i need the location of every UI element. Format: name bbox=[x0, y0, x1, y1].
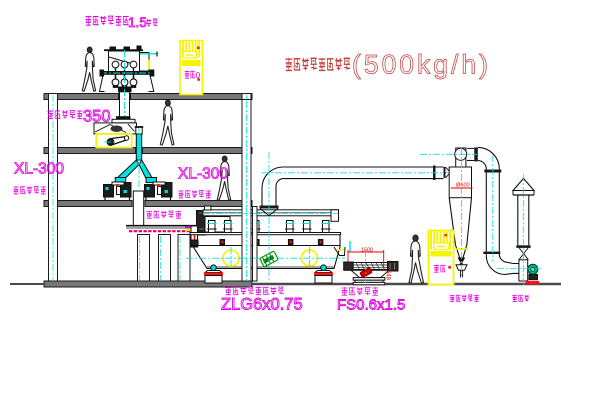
svg-text:ZLG6x0.75: ZLG6x0.75 bbox=[221, 296, 303, 314]
svg-text:XL-300: XL-300 bbox=[14, 161, 64, 178]
svg-text:1.5: 1.5 bbox=[128, 15, 147, 30]
svg-text:(500kg/h): (500kg/h) bbox=[352, 50, 491, 80]
svg-text:XL-300: XL-300 bbox=[178, 166, 228, 183]
svg-text:548: 548 bbox=[385, 270, 391, 281]
svg-text:Ø600: Ø600 bbox=[456, 182, 470, 188]
svg-text:FS0.6x1.5: FS0.6x1.5 bbox=[337, 297, 405, 314]
svg-text:1500: 1500 bbox=[361, 248, 373, 254]
